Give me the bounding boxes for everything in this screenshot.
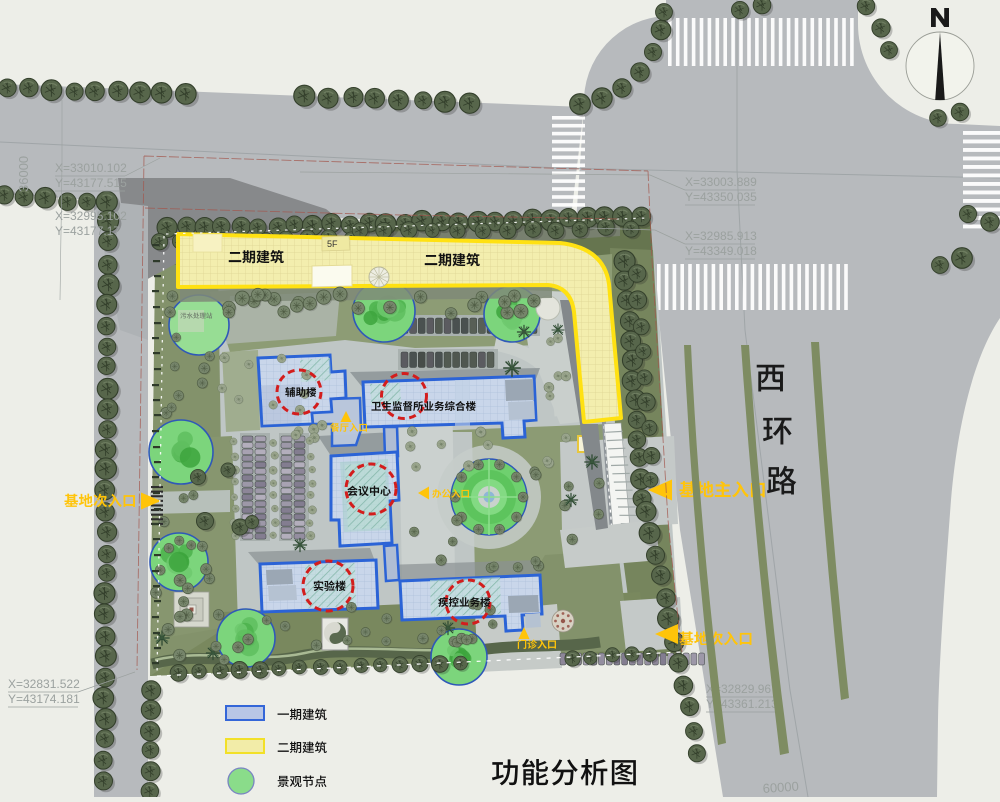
svg-text:Y=43349.018: Y=43349.018 xyxy=(685,244,757,258)
svg-text:X=32831.522: X=32831.522 xyxy=(8,677,80,691)
svg-text:X=33010.102: X=33010.102 xyxy=(55,161,127,175)
svg-text:Y=43350.035: Y=43350.035 xyxy=(685,190,757,204)
svg-text:60000: 60000 xyxy=(762,779,799,796)
svg-text:Y=43177.515: Y=43177.515 xyxy=(55,176,127,190)
svg-text:X=32985.913: X=32985.913 xyxy=(685,229,757,243)
svg-text:Y=43174.181: Y=43174.181 xyxy=(8,692,80,706)
svg-text:X=33003.889: X=33003.889 xyxy=(685,175,757,189)
svg-text:5F: 5F xyxy=(327,239,338,249)
svg-text:X=32995.102: X=32995.102 xyxy=(55,209,127,223)
svg-text:Y=43177.17: Y=43177.17 xyxy=(55,224,120,238)
svg-text:36000: 36000 xyxy=(16,156,31,192)
